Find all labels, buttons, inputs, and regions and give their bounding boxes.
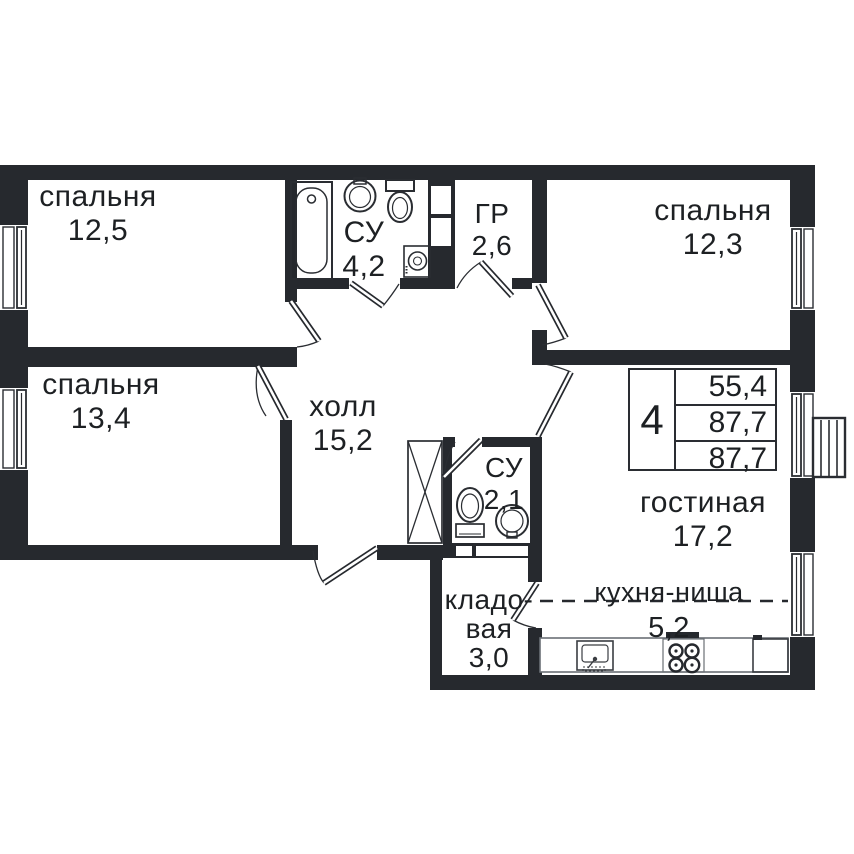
room-name: холл [309, 390, 377, 423]
room-area: 12,5 [0, 214, 228, 248]
apartment-info-table: 4 55,4 87,7 87,7 [628, 368, 777, 471]
room-area: 12,3 [583, 228, 843, 262]
total-area-reduced-value: 87,7 [676, 440, 775, 476]
floor-plan: спальня 12,5 СУ 4,2 ГР 2,6 спальня 12,3 … [0, 0, 854, 854]
room-area: 3,0 [359, 643, 619, 672]
living-area-value: 55,4 [676, 370, 775, 404]
room-name: СУ [485, 452, 523, 483]
rooms-count: 4 [630, 370, 676, 469]
room-area: 17,2 [573, 520, 833, 554]
room-label-hall: холл 15,2 [213, 390, 473, 458]
room-label-bedroom1: спальня 12,5 [0, 180, 228, 248]
room-name: гостиная [640, 486, 766, 519]
room-label-bedroom3: спальня 13,4 [0, 368, 231, 436]
room-name: ГР [475, 198, 510, 229]
room-area: 13,4 [0, 402, 231, 436]
areas-column: 55,4 87,7 87,7 [676, 370, 775, 469]
room-label-living: гостиная 17,2 [573, 486, 833, 554]
room-area: 5,2 [539, 607, 799, 643]
balcony-railing-icon [813, 418, 845, 477]
room-label-bedroom2: спальня 12,3 [583, 194, 843, 262]
room-name: спальня [42, 368, 159, 401]
total-area-value: 87,7 [676, 404, 775, 440]
room-label-kitchen: кухня-ниша 5,2 [539, 577, 799, 643]
room-name: спальня [39, 180, 156, 213]
room-name: спальня [654, 194, 771, 227]
room-name: кухня-ниша [594, 577, 743, 607]
